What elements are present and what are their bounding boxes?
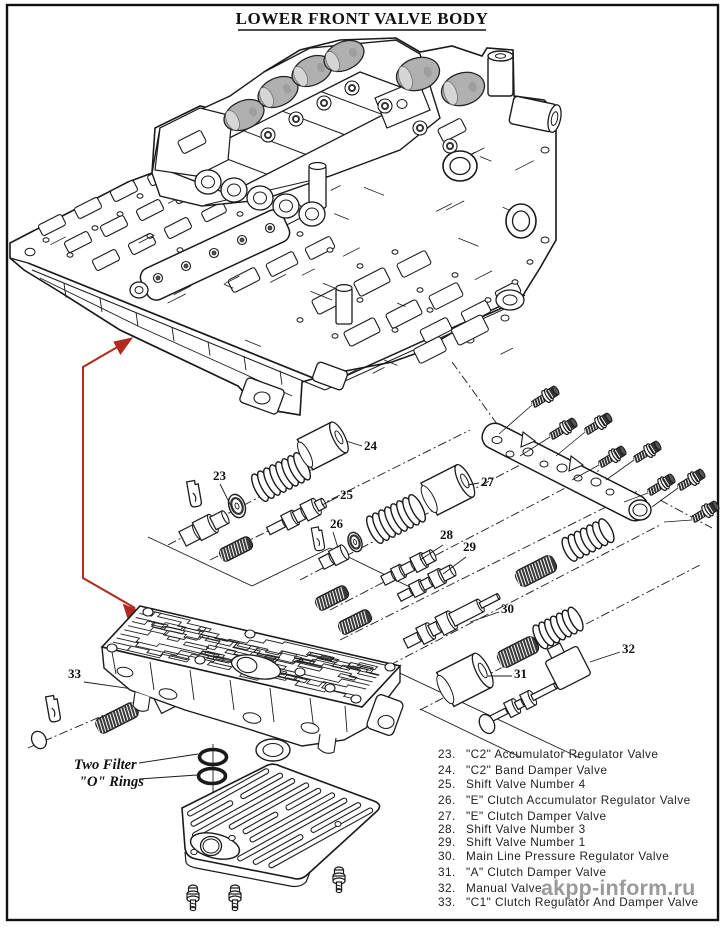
svg-text:"C2" Band Damper Valve: "C2" Band Damper Valve [466,763,607,777]
svg-text:Two Filter: Two Filter [74,757,137,773]
svg-text:23.: 23. [438,747,456,761]
svg-text:Shift Valve Number 3: Shift Valve Number 3 [466,822,586,836]
svg-text:32.: 32. [438,881,456,895]
svg-text:"E" Clutch Damper Valve: "E" Clutch Damper Valve [466,809,606,823]
svg-text:29.: 29. [438,835,456,849]
svg-text:28.: 28. [438,822,456,836]
svg-text:Shift Valve Number 4: Shift Valve Number 4 [466,777,586,791]
svg-text:25: 25 [340,487,354,502]
svg-text:26: 26 [330,516,344,531]
svg-text:Main Line Pressure Regulator V: Main Line Pressure Regulator Valve [466,849,669,863]
svg-text:33.: 33. [438,895,456,909]
svg-text:akpp-inform.ru: akpp-inform.ru [541,876,696,900]
svg-text:"O" Rings: "O" Rings [79,774,144,790]
svg-text:"C2" Accumulator Regulator Val: "C2" Accumulator Regulator Valve [466,747,658,761]
svg-text:26.: 26. [438,793,456,807]
svg-text:30.: 30. [438,849,456,863]
svg-text:Manual Valve: Manual Valve [466,881,542,895]
svg-text:31.: 31. [438,865,456,879]
svg-text:"E" Clutch Accumulator Regulat: "E" Clutch Accumulator Regulator Valve [466,793,691,807]
svg-text:33: 33 [68,666,82,681]
svg-text:27.: 27. [438,809,456,823]
svg-text:32: 32 [622,641,635,656]
svg-text:LOWER FRONT VALVE BODY: LOWER FRONT VALVE BODY [236,9,489,28]
svg-text:29: 29 [463,539,477,554]
svg-text:24.: 24. [438,763,456,777]
svg-text:28: 28 [440,527,454,542]
svg-text:Shift Valve Number 1: Shift Valve Number 1 [466,835,586,849]
svg-text:24: 24 [364,438,378,453]
svg-text:25.: 25. [438,777,456,791]
svg-text:31: 31 [514,666,527,681]
svg-text:30: 30 [501,601,514,616]
svg-text:23: 23 [213,468,227,483]
svg-text:27: 27 [481,474,495,489]
